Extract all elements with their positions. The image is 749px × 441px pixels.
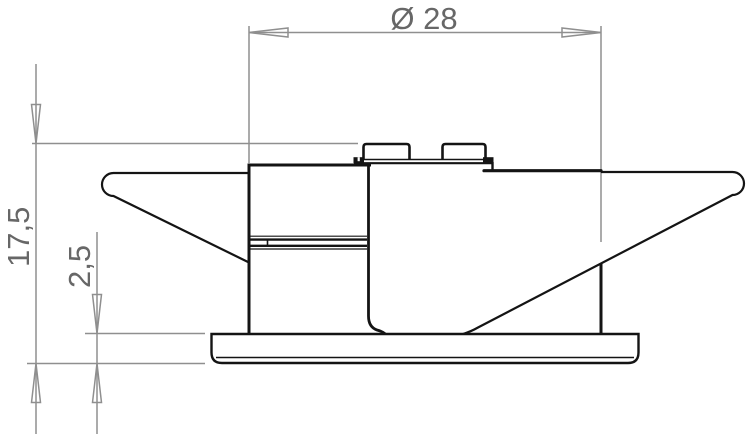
drawing-canvas: Ø 28 17,5 2,5 xyxy=(0,0,749,441)
top-strip xyxy=(354,157,494,169)
dimension-lines-group xyxy=(27,26,601,434)
flange-thickness-label: 2,5 xyxy=(62,245,97,288)
body-seam xyxy=(251,236,368,249)
strip-clip-notch xyxy=(358,157,360,161)
overall-height-label: 17,5 xyxy=(1,207,36,267)
dimension-diameter xyxy=(249,26,601,242)
dimension-flange-thickness xyxy=(85,232,205,434)
terminal-tab-right xyxy=(443,144,486,160)
terminal-tab-left xyxy=(364,144,410,160)
flange-outline xyxy=(212,334,639,363)
center-tube-edge xyxy=(369,164,386,336)
spring-arm-left xyxy=(102,173,249,263)
part-outline-group xyxy=(102,144,744,363)
diameter-label: Ø 28 xyxy=(390,1,457,36)
technical-drawing: Ø 28 17,5 2,5 xyxy=(0,0,749,441)
spring-arm-right xyxy=(463,172,744,334)
